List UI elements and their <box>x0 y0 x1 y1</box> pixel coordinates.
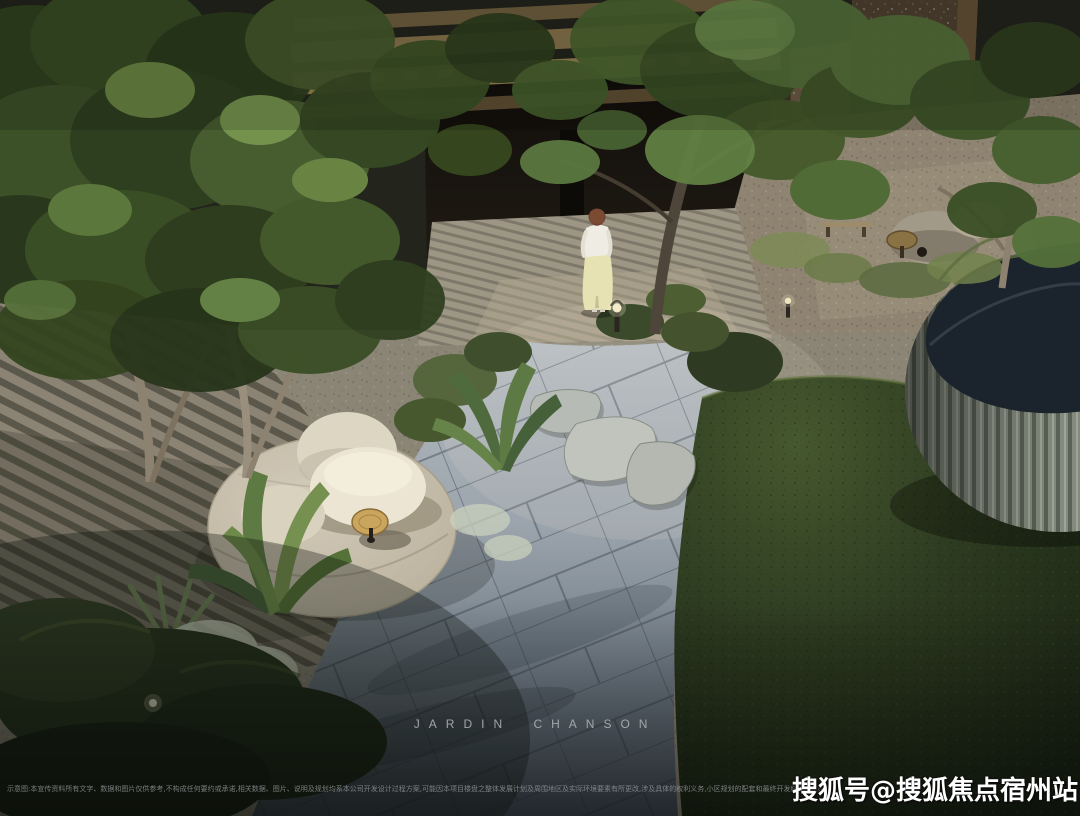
bench <box>822 222 872 227</box>
garden-scene <box>0 0 1080 816</box>
kettle <box>917 247 927 257</box>
rendering-canvas: JARDIN CHANSON 示意图:本宣传资料所有文字、数据和图片仅供参考,不… <box>0 0 1080 816</box>
sohu-watermark: 搜狐号@搜狐焦点宿州站 <box>792 770 1078 807</box>
disclaimer-text: 示意图:本宣传资料所有文字、数据和图片仅供参考,不构成任何要约或承诺,相关数据、… <box>7 785 825 794</box>
pavement-label: JARDIN CHANSON <box>414 717 657 731</box>
woman-top <box>584 225 610 257</box>
